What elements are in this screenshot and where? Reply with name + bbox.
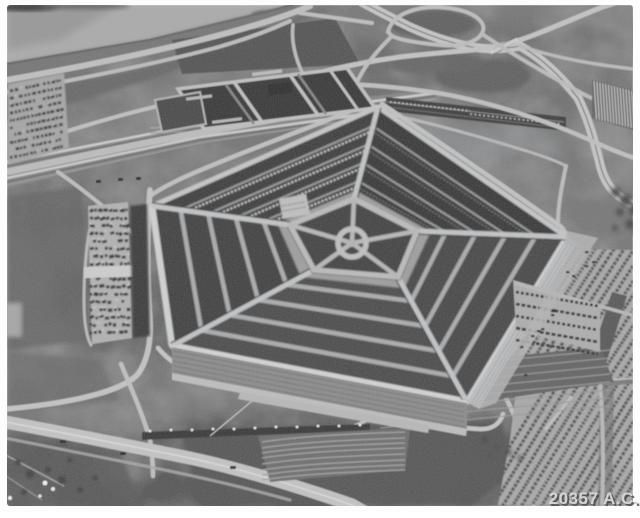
svg-text:20357 A.C.: 20357 A.C. [549, 489, 639, 508]
